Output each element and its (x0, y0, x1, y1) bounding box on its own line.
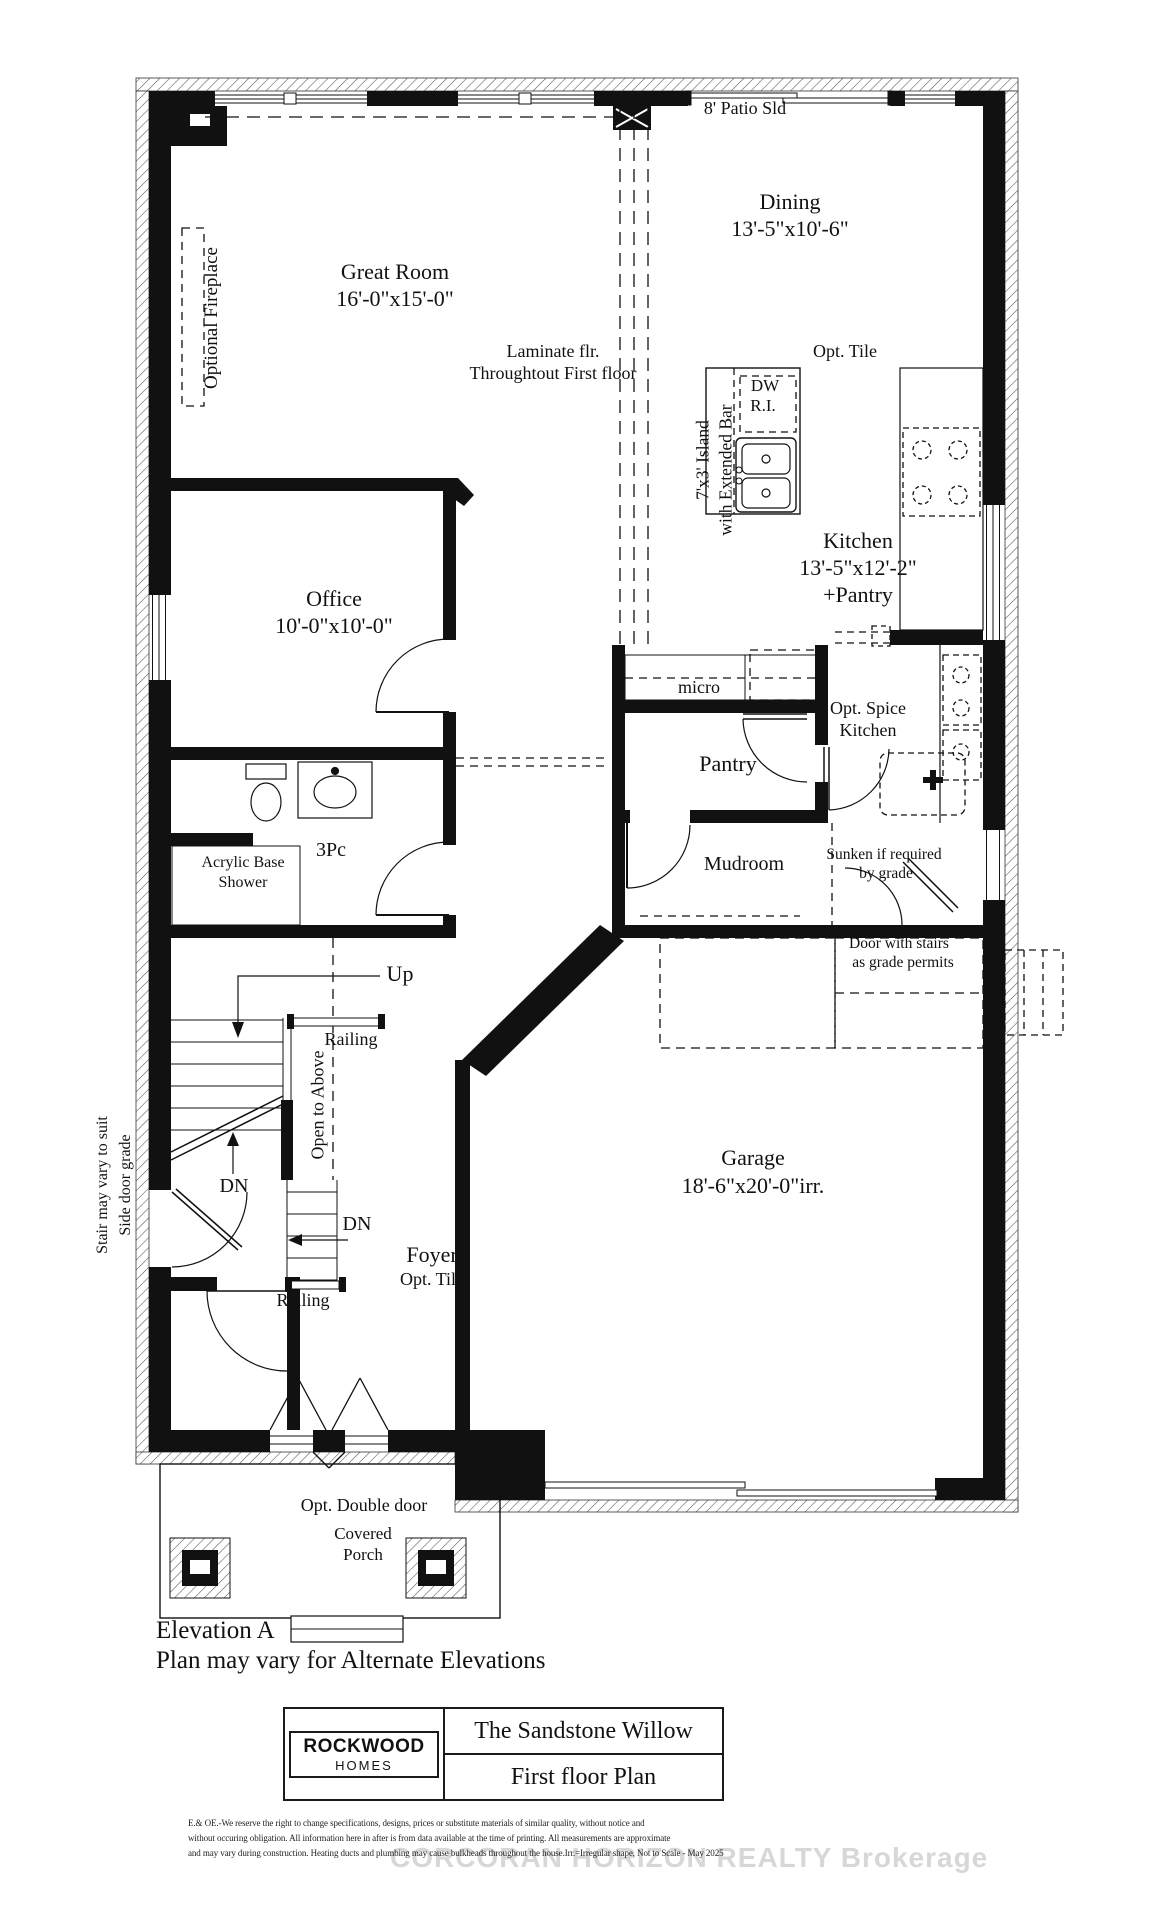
label-sunken-1: Sunken if required (826, 847, 941, 863)
porch (160, 1464, 500, 1642)
label-elevation: Elevation A (156, 1618, 275, 1644)
label-flooring-note-2: Throughtout First floor (470, 364, 637, 383)
label-spice-kitchen-1: Opt. Spice (830, 699, 906, 718)
label-grade-door-1: Door with stairs (849, 936, 949, 952)
disclaimer-line-2: without occuring obligation. All informa… (188, 1833, 670, 1843)
label-bath: 3Pc (316, 840, 346, 861)
label-dn-lower: DN (343, 1214, 372, 1235)
label-shower-2: Shower (219, 875, 268, 892)
label-office-dims: 10'-0"x10'-0" (275, 614, 393, 637)
label-sunken-2: by grade (859, 866, 913, 882)
label-flooring-note-1: Laminate flr. (507, 342, 600, 361)
label-front-door-note: Opt. Double door (301, 1496, 427, 1515)
disclaimer-line-3: and may vary during construction. Heatin… (188, 1848, 724, 1858)
label-great-room-name: Great Room (341, 260, 449, 283)
wall-details (190, 109, 648, 127)
builder-name-2: HOMES (303, 1758, 424, 1773)
title-block-text: The Sandstone Willow First floor Plan (445, 1709, 722, 1799)
label-ri: R.I. (750, 397, 776, 415)
label-garage-dims: 18'-6"x20'-0"irr. (682, 1174, 825, 1197)
kitchen-fixtures (625, 368, 983, 823)
label-pantry: Pantry (699, 752, 756, 775)
label-office-name: Office (306, 587, 362, 610)
label-kitchen-pantry: +Pantry (823, 583, 893, 606)
label-foyer-name: Foyer (406, 1243, 457, 1266)
label-open-to-above: Open to Above (308, 1051, 329, 1160)
stairs (171, 976, 385, 1292)
label-porch-1: Covered (334, 1525, 392, 1543)
label-island-2: with Extended Bar (716, 404, 737, 535)
disclaimer-line-1: E.& OE.-We reserve the right to change s… (188, 1818, 645, 1828)
label-dn-upper: DN (220, 1176, 249, 1197)
label-island-1: 7'x3' Island (693, 420, 714, 500)
label-kitchen-floor-note: Opt. Tile (813, 342, 877, 361)
label-porch-2: Porch (343, 1546, 383, 1564)
label-dining-dims: 13'-5"x10'-6" (731, 217, 849, 240)
label-stair-note-1: Stair may vary to suit (94, 1116, 112, 1254)
label-stair-note-2: Side door grade (117, 1134, 135, 1235)
label-garage-name: Garage (721, 1146, 785, 1169)
label-kitchen-dims: 13'-5"x12'-2" (799, 556, 917, 579)
builder-logo-cell: ROCKWOOD HOMES (285, 1709, 445, 1799)
label-spice-kitchen-2: Kitchen (840, 721, 897, 740)
label-elevation-note: Plan may vary for Alternate Elevations (156, 1648, 545, 1674)
builder-logo: ROCKWOOD HOMES (289, 1731, 438, 1778)
label-grade-door-2: as grade permits (852, 955, 954, 971)
label-railing-upper: Railing (325, 1030, 378, 1049)
model-name: The Sandstone Willow (445, 1709, 722, 1755)
builder-name: ROCKWOOD (303, 1736, 424, 1758)
label-stairs-up: Up (387, 962, 414, 985)
floor-plan-page: CORCORAN HORIZON REALTY Brokerage (0, 0, 1166, 1920)
title-block: ROCKWOOD HOMES The Sandstone Willow Firs… (283, 1707, 724, 1801)
label-dw: DW (751, 377, 779, 395)
label-optional-fireplace: Optional Fireplace (201, 247, 223, 389)
sheet-name: First floor Plan (445, 1755, 722, 1799)
label-shower-1: Acrylic Base (201, 855, 284, 872)
label-microwave: micro (678, 678, 720, 697)
label-patio-door: 8' Patio Sld (704, 99, 786, 118)
label-dining-name: Dining (759, 190, 820, 213)
label-railing-lower: Railing (277, 1291, 330, 1310)
label-great-room-dims: 16'-0"x15'-0" (336, 287, 454, 310)
label-kitchen-name: Kitchen (823, 529, 893, 552)
label-mudroom: Mudroom (704, 854, 784, 875)
label-foyer-floor: Opt. Tile (400, 1270, 464, 1289)
